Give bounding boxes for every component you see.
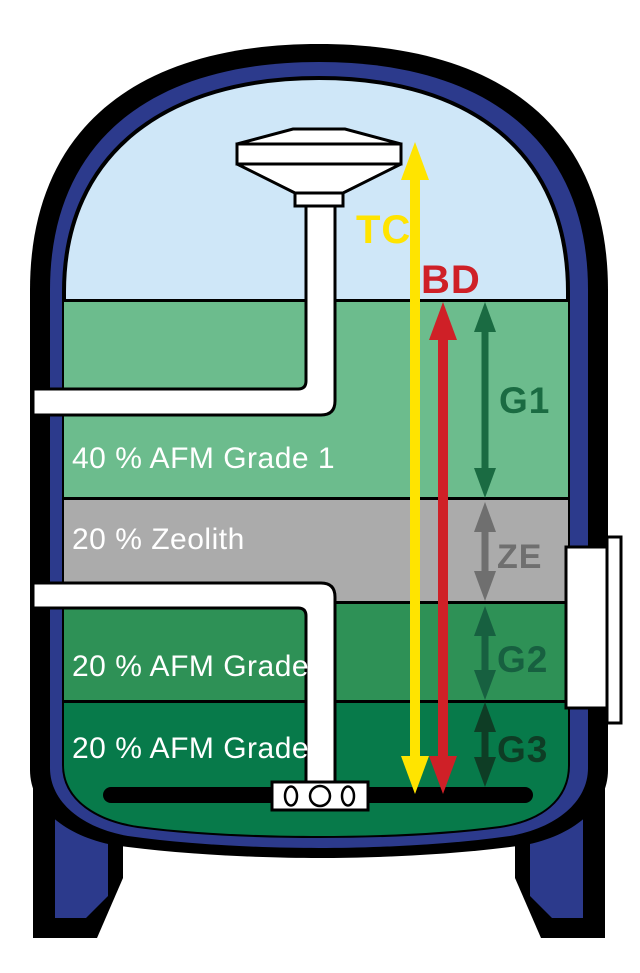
nozzle-slot-right [342,787,354,806]
layer-caption-g1: 40 % AFM Grade 1 [72,442,335,475]
g2-label: G2 [497,639,548,680]
g1-label: G1 [499,380,550,421]
nozzle-slot-left [285,787,297,806]
bd-arrow-shaft [438,336,448,758]
boundary-g1-ze [60,497,574,500]
nozzle-slot-center [310,786,330,806]
g3-label: G3 [497,729,548,770]
layer-caption-zeolith: 20 % Zeolith [72,523,245,556]
side-nozzle [566,547,608,708]
tc-arrow-shaft [410,176,420,758]
ze-label: ZE [497,538,542,576]
side-nozzle-flange [607,537,621,723]
bd-label: BD [421,258,481,302]
layer-caption-g2: 20 % AFM Grade 2 [72,650,335,683]
filter-vessel-diagram: TC BD G1 ZE G2 G3 40 % AFM Grade 1 20 % … [0,0,640,973]
layer-caption-g3: 20 % AFM Grade 3 [72,732,335,765]
tc-label: TC [356,208,411,252]
distributor-band [237,144,401,164]
distributor-neck [295,193,343,206]
